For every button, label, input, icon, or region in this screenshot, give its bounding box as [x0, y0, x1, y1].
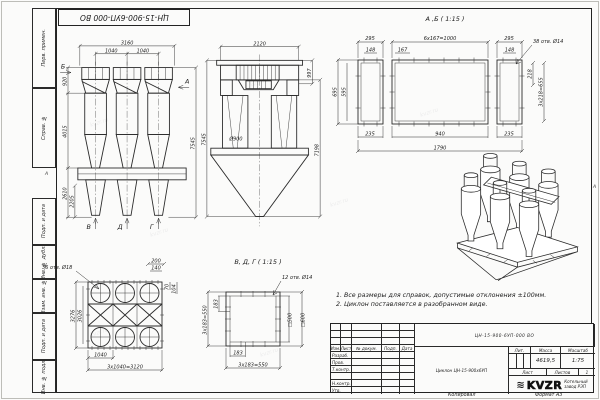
- row-tcontrol: Т.контр.: [331, 366, 352, 373]
- dim-3x218: 3x218=655: [539, 77, 545, 106]
- dim-sq600: □600: [301, 313, 307, 327]
- dim-3x1040: 3x1040=3120: [107, 364, 143, 370]
- margin-label: Справ. №: [41, 115, 47, 140]
- sheet-label: Лист: [509, 369, 547, 376]
- dim-200: 200: [151, 259, 161, 265]
- front-view-drawing: 3160 1040 1040 920 4015 2610 2205 7545 Б…: [58, 40, 206, 232]
- dim-167: 167: [398, 47, 408, 53]
- dim-695: 695: [333, 87, 339, 97]
- scale-value: 1:75: [561, 354, 595, 369]
- dim-1040-right: 1040: [137, 48, 150, 54]
- dim-183-bottom: 183: [233, 350, 243, 356]
- zone-marker-right: А: [593, 185, 596, 190]
- dim-940: 940: [435, 131, 445, 137]
- view-arrow-b: Б: [61, 63, 66, 71]
- plan-geometry: [86, 280, 164, 350]
- margin-label: Перв. примен.: [41, 29, 47, 67]
- dim-1040: 1040: [94, 352, 107, 358]
- plan-holes-note: 36 отв. Ø18: [42, 264, 72, 271]
- margin-box-perv-primen: Перв. примен.: [32, 8, 56, 88]
- dim-218: 218: [528, 69, 534, 79]
- doc-number-text: ЦН-15-900-6УП-000 ВО: [475, 333, 535, 338]
- front-view-geometry: [78, 68, 186, 216]
- dim-3x183-left: 3x183=550: [203, 305, 209, 334]
- dim-7545: 7545: [191, 137, 197, 150]
- vdg-holes-note: 12 отв. Ø14: [282, 274, 312, 281]
- iso-geometry: [457, 153, 577, 280]
- dim-4015: 4015: [63, 125, 69, 138]
- row-ncontrol: Н.контр.: [331, 380, 352, 387]
- col-list: Лист: [341, 345, 352, 352]
- col-date: Дата: [400, 345, 415, 352]
- dim-1040-left: 1040: [105, 48, 118, 54]
- margin-box-sprav-no: Справ. №: [32, 88, 56, 168]
- ab-view-geometry: [356, 58, 525, 127]
- dim-148-right: 148: [505, 47, 515, 53]
- ab-view-dimensions: 295 6x167=1000 295 148 167 148 38 отв. Ø…: [333, 36, 564, 153]
- vdg-flange-view: В, Д, Г ( 1:15 ) 12 отв. Ø14 183 3x183=5…: [196, 254, 341, 386]
- dim-70: 70: [165, 284, 171, 290]
- dim-235-right: 235: [504, 131, 514, 137]
- product-name-text: Циклон ЦН-15-900х6УП: [436, 368, 487, 373]
- dim-3160: 3160: [121, 41, 133, 47]
- col-doc: № докум.: [352, 345, 382, 352]
- format-label: Формат А3: [535, 393, 562, 398]
- product-name-cell: Циклон ЦН-15-900х6УП: [415, 347, 509, 394]
- dim-3x183-bottom: 3x183=550: [238, 362, 267, 368]
- dim-7198: 7198: [315, 144, 321, 156]
- view-arrow-d: Д: [117, 223, 123, 231]
- mass-label: Масса: [531, 347, 561, 354]
- title-block: Изм. Лист № докум. Подп. Дата Разраб. Пр…: [330, 323, 594, 393]
- doc-number-cell: ЦН-15-900-6УП-000 ВО: [415, 324, 595, 347]
- company-line-2: завод РЭП: [564, 384, 586, 389]
- col-izm: Изм.: [331, 345, 341, 352]
- col-sign: Подп.: [382, 345, 400, 352]
- sheets-value: 1: [579, 369, 595, 376]
- dim-235-left: 235: [365, 131, 375, 137]
- ab-flange-view: А ,Б ( 1:15 ) 295 6x167=1000 295 148 167…: [330, 12, 590, 160]
- doc-number-rotated: ЦН-15-900-6УП-000 ВО: [80, 13, 169, 22]
- side-view-dimensions: 2120 997 Ø900 7545 7198: [202, 41, 323, 218]
- dim-d900: Ø900: [228, 135, 242, 142]
- plan-flange-view: 36 отв. Ø18 200 140 70 104 3276 3026: [36, 256, 206, 394]
- dim-3026: 3026: [78, 310, 84, 323]
- row-approved: Утв.: [331, 387, 352, 394]
- isometric-view: [440, 140, 590, 285]
- mass-value: 4619,5: [531, 354, 561, 369]
- dim-2610: 2610: [63, 187, 69, 200]
- company-name: Котельный завод РЭП: [564, 380, 587, 390]
- dim-920: 920: [63, 77, 69, 86]
- zone-marker-left: А: [45, 172, 48, 177]
- margin-label: Подп. и дата: [41, 204, 47, 238]
- drawing-sheet: kvzr.ru kvzr.ru kvzr.ru kvzr.ru kvzr.ru …: [0, 0, 600, 400]
- doc-number-stamp: ЦН-15-900-6УП-000 ВО: [58, 9, 190, 26]
- note-line-1: 1. Все размеры для справок, допустимые о…: [336, 291, 592, 300]
- copied-label: Копировал: [448, 393, 475, 398]
- ab-holes-note: 38 отв. Ø14: [533, 38, 563, 45]
- dim-595: 595: [342, 87, 348, 97]
- vdg-geometry: [225, 291, 281, 347]
- dim-3276: 3276: [71, 310, 77, 323]
- dim-148-left: 148: [366, 47, 376, 53]
- vdg-view-title: В, Д, Г ( 1:15 ): [234, 258, 281, 266]
- row-checked: Пров.: [331, 359, 352, 366]
- note-line-2: 2. Циклон поставляется в разобранном вид…: [336, 300, 592, 309]
- scale-label: Масштаб: [561, 347, 595, 354]
- dim-7545-side: 7545: [202, 133, 208, 145]
- dim-2120: 2120: [253, 41, 265, 47]
- logo-cell: ≋ KVZR Котельный завод РЭП: [509, 376, 595, 394]
- dim-sq500: □500: [288, 313, 294, 327]
- dim-295-left: 295: [365, 36, 375, 42]
- view-arrow-v: В: [86, 223, 90, 231]
- view-arrow-a: А: [184, 77, 189, 85]
- dim-295-right: 295: [504, 36, 514, 42]
- margin-box-podp-data-1: Подп. и дата: [32, 198, 56, 245]
- kvzr-logo: KVZR: [527, 379, 562, 392]
- plan-holes-leader: [76, 271, 99, 289]
- dim-6x167: 6x167=1000: [424, 36, 457, 42]
- dim-2205: 2205: [70, 195, 76, 208]
- spring-icon: ≋: [516, 380, 524, 391]
- dim-104: 104: [172, 284, 178, 294]
- lit-label: Лит.: [509, 347, 531, 354]
- view-arrow-g: Г: [150, 223, 154, 231]
- dim-183-left: 183: [214, 299, 220, 309]
- dim-997: 997: [307, 68, 313, 78]
- side-view-drawing: 2120 997 Ø900 7545 7198: [203, 40, 325, 232]
- sheets-label: Листов: [547, 369, 579, 376]
- row-developed: Разраб.: [331, 352, 352, 359]
- vdg-dimensions: 183 3x183=550 □500 □600 183 3x183=550: [203, 290, 307, 370]
- dim-140: 140: [151, 266, 161, 272]
- drawing-notes: 1. Все размеры для справок, допустимые о…: [336, 291, 592, 310]
- ab-view-title: А ,Б ( 1:15 ): [425, 15, 465, 23]
